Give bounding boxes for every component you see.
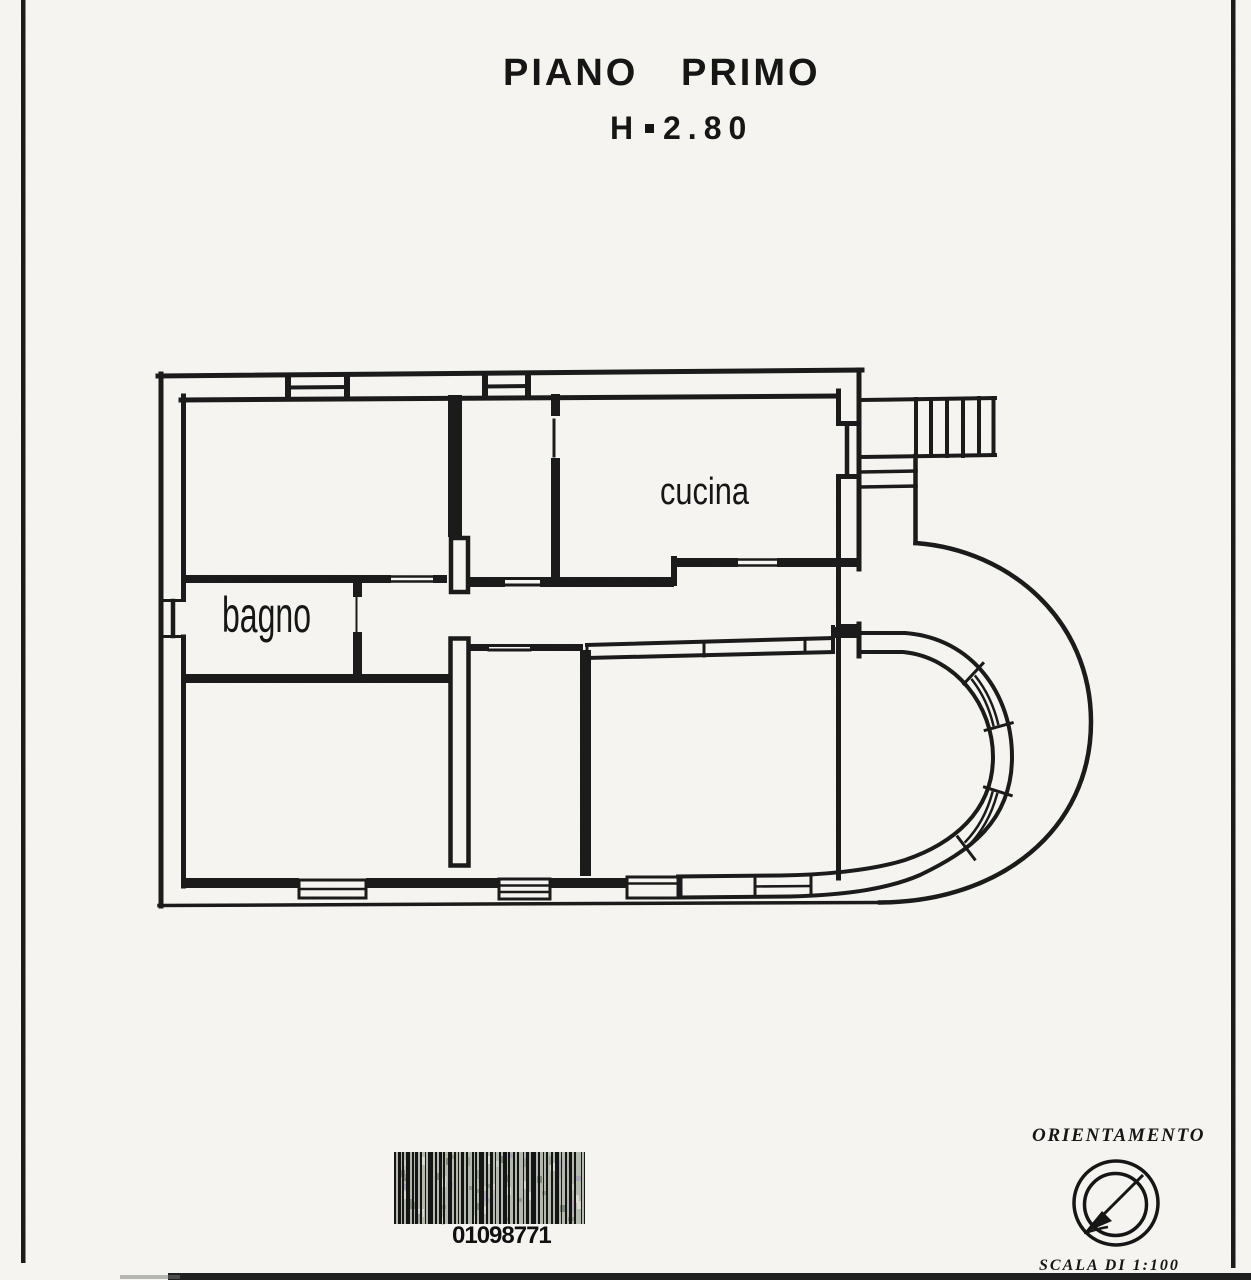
svg-text:PRIMO: PRIMO: [681, 52, 821, 94]
svg-text:2.80: 2.80: [663, 110, 753, 146]
svg-text:H: H: [610, 110, 633, 146]
svg-text:bagno: bagno: [222, 587, 311, 643]
svg-text:cucina: cucina: [660, 471, 750, 513]
svg-text:PIANO: PIANO: [503, 52, 638, 94]
svg-text:SCALA DI 1:100: SCALA DI 1:100: [1039, 1257, 1180, 1274]
svg-text:01098771: 01098771: [452, 1222, 551, 1249]
svg-text:ORIENTAMENTO: ORIENTAMENTO: [1032, 1125, 1205, 1146]
